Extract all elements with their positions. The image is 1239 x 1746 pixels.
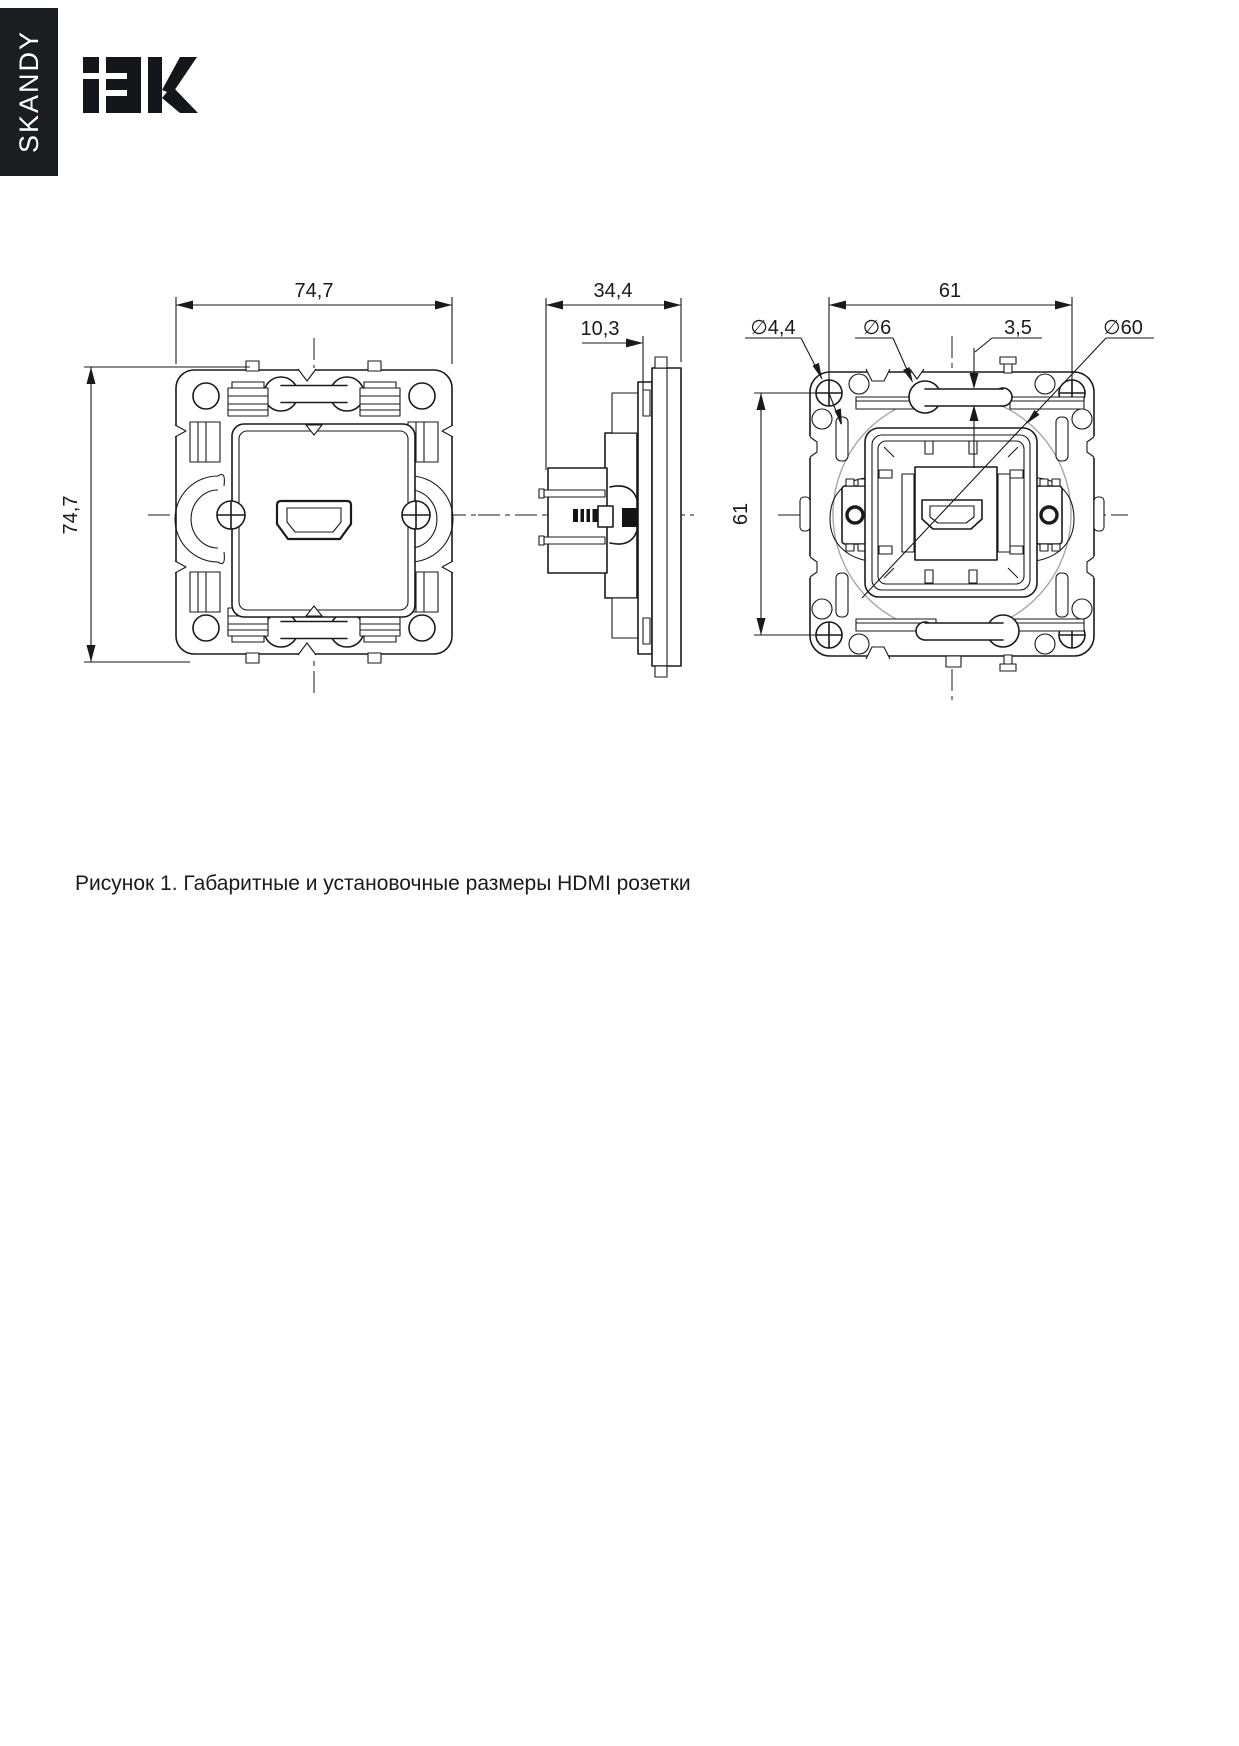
dim-label-mount-circle-dia: ∅60	[1103, 317, 1143, 339]
side-face-depth-dimension: 10,3	[581, 318, 643, 390]
dim-label-back-spacing-v: 61	[730, 503, 752, 525]
front-hdmi-connector	[277, 501, 351, 539]
side-frame-plate	[638, 382, 652, 654]
dim-label-slot-width: 3,5	[1004, 317, 1032, 339]
dim-label-side-face-depth: 10,3	[581, 318, 620, 340]
side-view-drawing: 34,4 10,3	[478, 280, 694, 677]
dim-label-side-depth: 34,4	[594, 280, 633, 302]
dim-label-back-spacing-h: 61	[939, 280, 961, 302]
dim-label-hole-dia: ∅6	[863, 317, 892, 339]
dim-label-screw-hole-dia: ∅4,4	[750, 317, 795, 339]
dimension-figure: 74,7 74,7	[0, 0, 1239, 780]
document-page: SKANDY	[0, 0, 1239, 1746]
dim-label-front-width: 74,7	[295, 280, 334, 302]
figure-caption: Рисунок 1. Габаритные и установочные раз…	[75, 872, 691, 896]
dim-label-front-height: 74,7	[60, 496, 82, 535]
front-view-drawing: 74,7 74,7	[60, 280, 482, 694]
back-view-drawing: 61 61 ∅4,4 ∅6	[730, 280, 1154, 700]
back-mechanism-housing	[865, 428, 1037, 597]
